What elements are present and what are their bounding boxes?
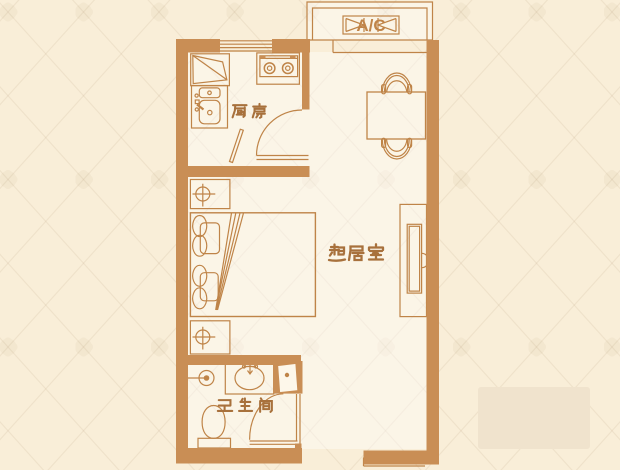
svg-text:A/C: A/C: [356, 16, 385, 35]
